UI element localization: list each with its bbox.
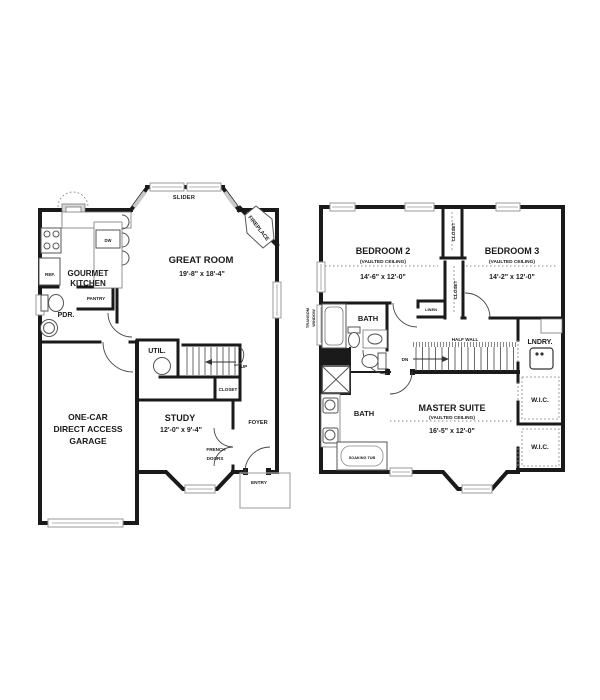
vaulted-ceiling-lines [325,266,558,421]
first-floor-doors [103,313,270,472]
toilet-tank [378,353,386,369]
master-suite-ceiling: (VAULTED CEILING) [429,415,475,421]
toilet-tank [41,295,48,311]
bedroom3-ceiling: (VAULTED CEILING) [489,259,535,265]
bedroom3-door-arc [465,293,490,318]
bar-stool [122,233,129,247]
wic2-label: W.I.C. [531,444,549,451]
dn-label: DN [402,357,409,362]
first-floor-windows [36,183,281,527]
garage-label-line1: ONE-CAR [68,412,108,422]
hall-door-arc [108,313,132,337]
entry-porch [240,473,290,508]
toilet-bowl [49,295,64,312]
transom-label-line2: WINDOW [311,309,316,327]
bath-fixtures: SOAKING TUB [321,304,387,470]
garage-entry-door-arc [103,342,133,372]
master-door-arc [390,372,412,394]
closet2-label: CLOSET [453,280,458,299]
master-suite-label: MASTER SUITE [418,403,485,413]
transom-label-line1: TRANSOM [305,307,310,328]
study-label: STUDY [165,413,196,423]
bedroom3-label: BEDROOM 3 [485,246,540,256]
double-vanity [321,394,340,447]
bedroom2-door-arc [393,303,417,327]
vanity [363,330,387,348]
linen-label: LINEN [425,307,437,312]
laundry-counter [541,319,562,333]
garage-label-line3: GARAGE [69,436,107,446]
master-suite-dims: 16'-5" x 12'-0" [429,428,475,435]
pdr-label: PDR. [58,312,75,319]
toilet-bowl [362,355,378,368]
slider-label: SLIDER [173,195,195,201]
bath-lower-label: BATH [354,409,374,418]
bath-upper-label: BATH [358,314,378,323]
closet-label: CLOSET [219,387,238,392]
kitchen-label-line2: KITCHEN [70,279,106,288]
soaking-tub-label: SOAKING TUB [349,456,376,460]
stairs-up: UP [187,346,247,375]
wic1-label: W.I.C. [531,397,549,404]
fireplace: FIREPLACE [240,206,277,248]
toilet-bowl [349,333,360,348]
kitchen-label-line1: GOURMET [68,269,109,278]
first-floor-interior-walls [40,287,271,475]
bar-stool [122,251,129,265]
french-doors-line2: DOORS [207,456,224,461]
floor-plan-page: FIREPLACE REF. [0,0,600,700]
half-wall-label: HALF WALL [452,337,479,342]
dn-arrow [442,356,449,362]
closet1-label: CLOSET [451,222,456,241]
bedroom2-ceiling: (VAULTED CEILING) [360,259,406,265]
great-room-dims: 19'-8" x 18'-4" [179,271,225,278]
second-floor-plan: DN HALF WALL [305,203,563,493]
lndry-label: LNDRY. [527,339,552,346]
study-dims: 12'-0" x 9'-4" [160,427,202,434]
chimney [321,348,350,365]
washer-dryer [530,348,553,369]
ref-label: REF. [45,272,55,277]
utility-room [154,358,171,375]
bedroom2-dims: 14'-6" x 12'-0" [360,274,406,281]
french-doors-line1: FRENCH [206,447,226,452]
french-door-arc [214,428,233,447]
bedroom3-dims: 14'-2" x 12'-0" [489,274,535,281]
great-room-label: GREAT ROOM [169,255,234,266]
up-arrow [205,359,212,365]
entry-label: ENTRY [251,480,268,486]
garage-label-line2: DIRECT ACCESS [53,424,122,434]
first-floor-plan: FIREPLACE REF. [36,183,290,527]
water-heater [154,358,171,375]
foyer-label: FOYER [248,420,267,426]
dw-label: DW [105,238,112,243]
stairs-down: DN HALF WALL [402,337,518,371]
util-label: UTIL. [148,348,166,355]
bedroom2-label: BEDROOM 2 [356,246,411,256]
pantry-label: PANTRY [87,296,105,301]
floor-plan-drawing: FIREPLACE REF. [0,0,600,700]
up-label: UP [241,364,247,369]
